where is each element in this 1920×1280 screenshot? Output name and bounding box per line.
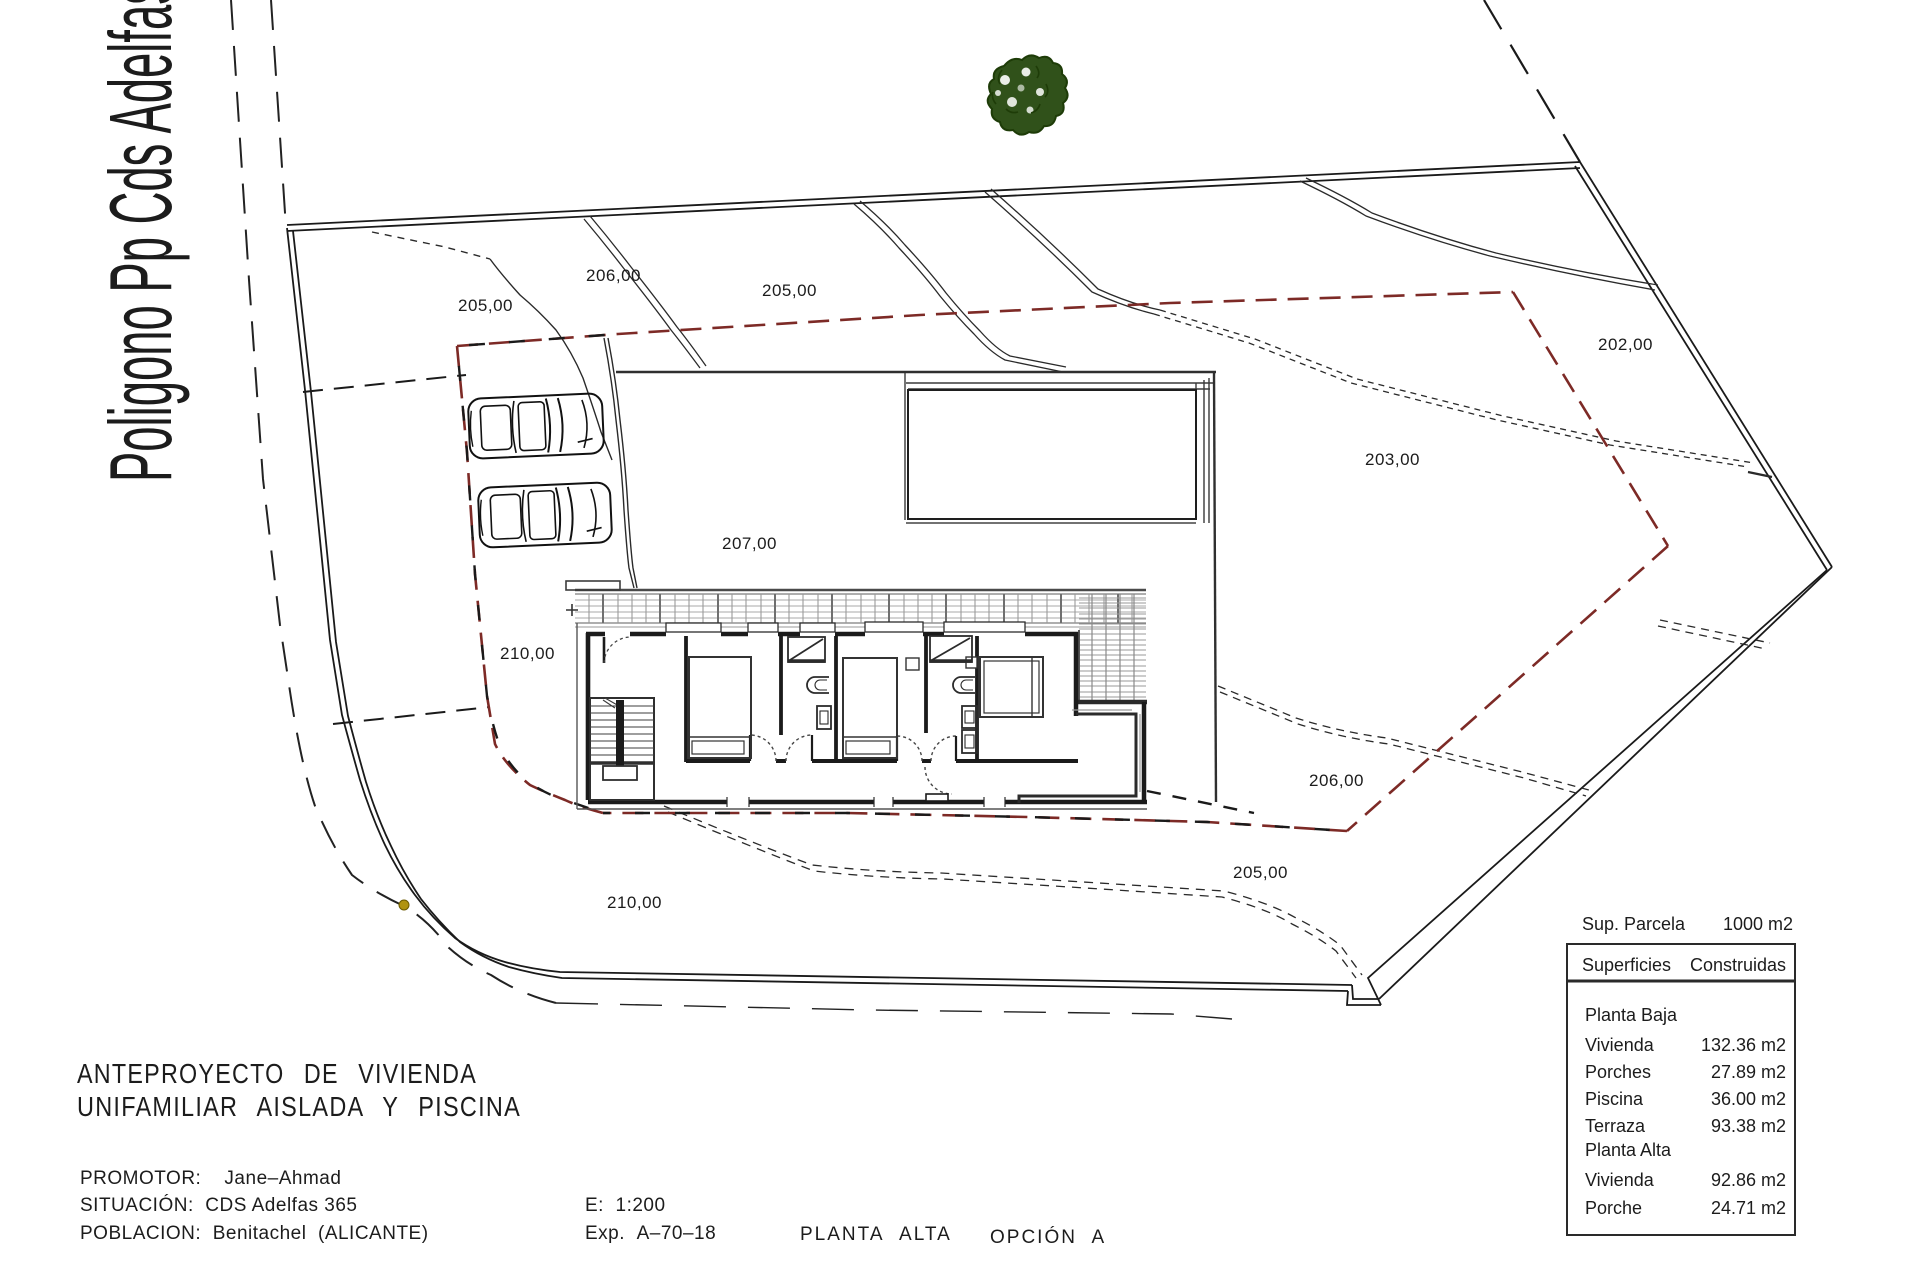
svg-text:Vivienda: Vivienda — [1585, 1035, 1655, 1055]
svg-text:ANTEPROYECTO DE VIVIENDA: ANTEPROYECTO DE VIVIENDA — [77, 1058, 477, 1089]
svg-text:1000 m2: 1000 m2 — [1723, 914, 1793, 934]
svg-text:PLANTA ALTA: PLANTA ALTA — [800, 1224, 952, 1245]
svg-text:UNIFAMILIAR AISLADA Y PISCINA: UNIFAMILIAR AISLADA Y PISCINA — [77, 1091, 521, 1122]
svg-text:Planta Baja: Planta Baja — [1585, 1005, 1678, 1025]
svg-text:206,00: 206,00 — [586, 266, 641, 285]
svg-text:203,00: 203,00 — [1365, 450, 1420, 469]
svg-text:OPCIÓN A: OPCIÓN A — [990, 1226, 1106, 1248]
svg-text:210,00: 210,00 — [500, 644, 555, 663]
svg-text:132.36 m2: 132.36 m2 — [1701, 1035, 1786, 1055]
svg-text:Piscina: Piscina — [1585, 1089, 1644, 1109]
svg-text:E: 1:200: E: 1:200 — [585, 1195, 666, 1216]
svg-text:Exp. A–70–18: Exp. A–70–18 — [585, 1223, 716, 1244]
svg-text:Superficies: Superficies — [1582, 955, 1671, 975]
svg-text:207,00: 207,00 — [722, 534, 777, 553]
svg-text:36.00 m2: 36.00 m2 — [1711, 1089, 1786, 1109]
svg-text:205,00: 205,00 — [458, 296, 513, 315]
svg-text:Construidas: Construidas — [1690, 955, 1786, 975]
svg-text:Sup. Parcela: Sup. Parcela — [1582, 914, 1686, 934]
svg-text:27.89 m2: 27.89 m2 — [1711, 1062, 1786, 1082]
svg-text:Terraza: Terraza — [1585, 1116, 1646, 1136]
svg-text:206,00: 206,00 — [1309, 771, 1364, 790]
svg-text:Vivienda: Vivienda — [1585, 1170, 1655, 1190]
svg-text:92.86 m2: 92.86 m2 — [1711, 1170, 1786, 1190]
svg-text:205,00: 205,00 — [762, 281, 817, 300]
svg-text:Poligono Pp Cds Adelfas: Poligono Pp Cds Adelfas — [91, 0, 190, 482]
svg-text:PROMOTOR: Jane–Ahmad: PROMOTOR: Jane–Ahmad — [80, 1168, 341, 1189]
svg-text:Porche: Porche — [1585, 1198, 1642, 1218]
svg-text:202,00: 202,00 — [1598, 335, 1653, 354]
svg-text:205,00: 205,00 — [1233, 863, 1288, 882]
svg-text:24.71 m2: 24.71 m2 — [1711, 1198, 1786, 1218]
svg-text:Porches: Porches — [1585, 1062, 1651, 1082]
svg-text:SITUACIÓN: CDS Adelfas 365: SITUACIÓN: CDS Adelfas 365 — [80, 1194, 358, 1216]
svg-text:93.38 m2: 93.38 m2 — [1711, 1116, 1786, 1136]
svg-text:POBLACION: Benitachel (ALICA: POBLACION: Benitachel (ALICANTE) — [80, 1223, 429, 1244]
svg-text:210,00: 210,00 — [607, 893, 662, 912]
svg-text:Planta Alta: Planta Alta — [1585, 1140, 1672, 1160]
